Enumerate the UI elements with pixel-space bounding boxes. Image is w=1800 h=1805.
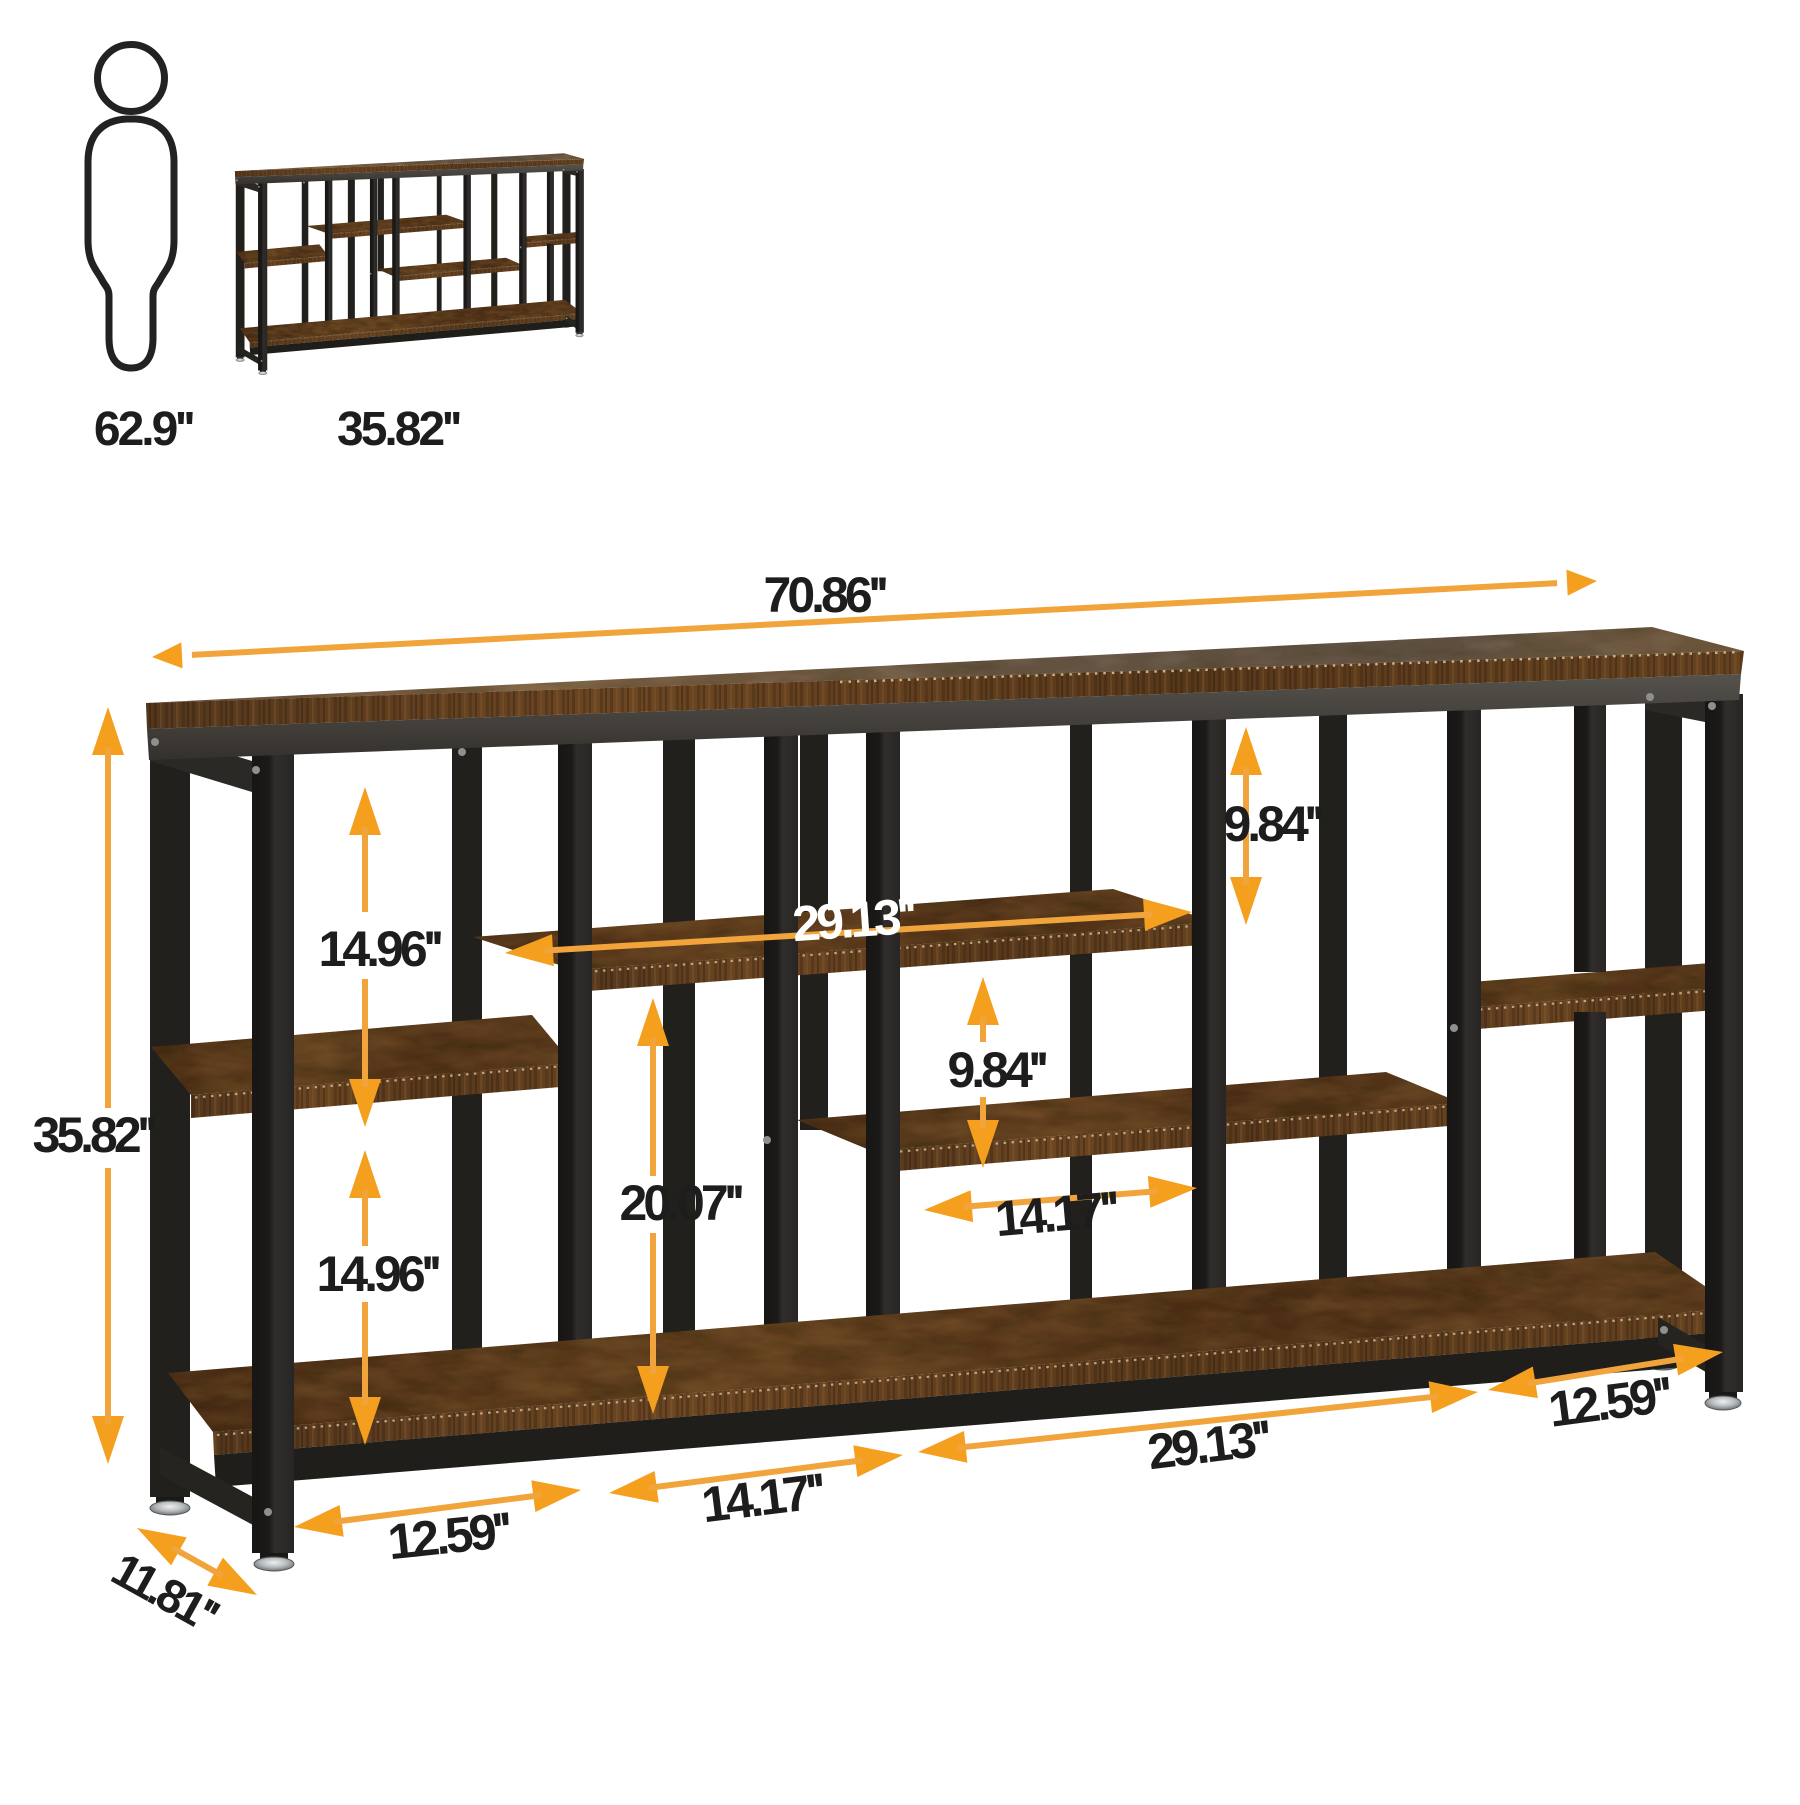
svg-text:9.84'': 9.84'': [1223, 796, 1322, 852]
svg-text:70.86'': 70.86'': [764, 567, 887, 623]
svg-text:20.07'': 20.07'': [620, 1175, 743, 1231]
svg-text:62.9'': 62.9'': [94, 403, 193, 456]
svg-text:14.96'': 14.96'': [319, 921, 442, 977]
svg-text:35.82'': 35.82'': [337, 403, 460, 456]
svg-text:29.13'': 29.13'': [791, 888, 918, 952]
svg-text:14.96'': 14.96'': [317, 1246, 440, 1302]
svg-text:35.82'': 35.82'': [33, 1107, 156, 1163]
svg-text:9.84'': 9.84'': [947, 1042, 1046, 1098]
svg-text:14.17'': 14.17'': [993, 1181, 1120, 1248]
